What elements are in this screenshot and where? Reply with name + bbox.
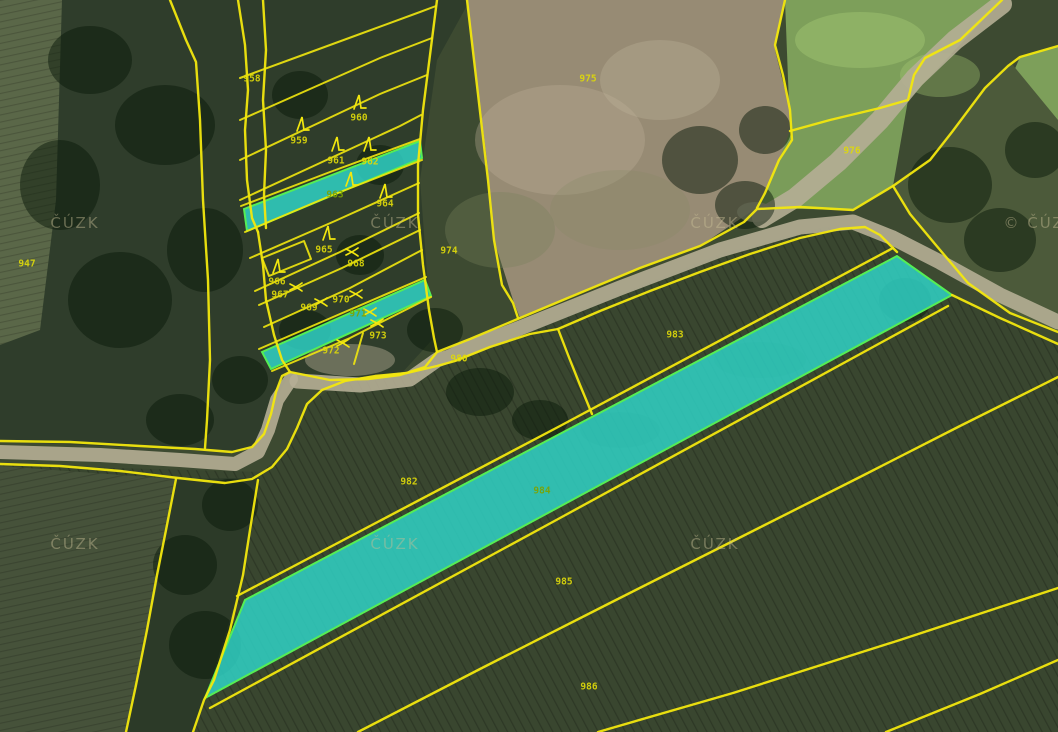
cuzk-watermark: ČÚZK	[690, 214, 739, 232]
cuzk-watermark: ČÚZK	[370, 214, 419, 232]
cuzk-watermark: ČÚZK	[690, 535, 739, 553]
parcel-label-967: 967	[271, 290, 288, 301]
parcel-label-976: 976	[843, 146, 860, 157]
parcel-label-984: 984	[533, 486, 550, 497]
parcel-label-970: 970	[332, 295, 349, 306]
map-canvas[interactable]: 947 958 959 960 961 962 963 964 965 966 …	[0, 0, 1058, 732]
parcel-label-960: 960	[350, 113, 367, 124]
parcel-label-947: 947	[18, 259, 35, 270]
parcel-label-972: 972	[322, 346, 339, 357]
parcel-label-961: 961	[327, 156, 344, 167]
cuzk-watermark: ČÚZK	[370, 535, 419, 553]
cuzk-watermark: ČÚZK	[50, 214, 99, 232]
cadastral-map-svg	[0, 0, 1058, 732]
parcel-label-962: 962	[361, 157, 378, 168]
parcel-label-986: 986	[580, 682, 597, 693]
cuzk-copyright-watermark: © ČÚZK	[1003, 214, 1058, 232]
parcel-label-973: 973	[369, 331, 386, 342]
parcel-label-980: 980	[450, 354, 467, 365]
parcel-label-971: 971	[349, 309, 366, 320]
parcel-label-983: 983	[666, 330, 683, 341]
parcel-label-963: 963	[326, 190, 343, 201]
parcel-label-959: 959	[290, 136, 307, 147]
parcel-label-968: 968	[347, 259, 364, 270]
parcel-label-975: 975	[579, 74, 596, 85]
parcel-label-982: 982	[400, 477, 417, 488]
parcel-label-958: 958	[243, 74, 260, 85]
parcel-label-965: 965	[315, 245, 332, 256]
parcel-label-985: 985	[555, 577, 572, 588]
parcel-label-966: 966	[268, 277, 285, 288]
parcel-label-974: 974	[440, 246, 457, 257]
cuzk-watermark: ČÚZK	[50, 535, 99, 553]
cadastral-map-view: { "map": { "parcels": [ {"number":"947",…	[0, 0, 1058, 732]
parcel-label-964: 964	[376, 199, 393, 210]
parcel-label-969: 969	[300, 303, 317, 314]
